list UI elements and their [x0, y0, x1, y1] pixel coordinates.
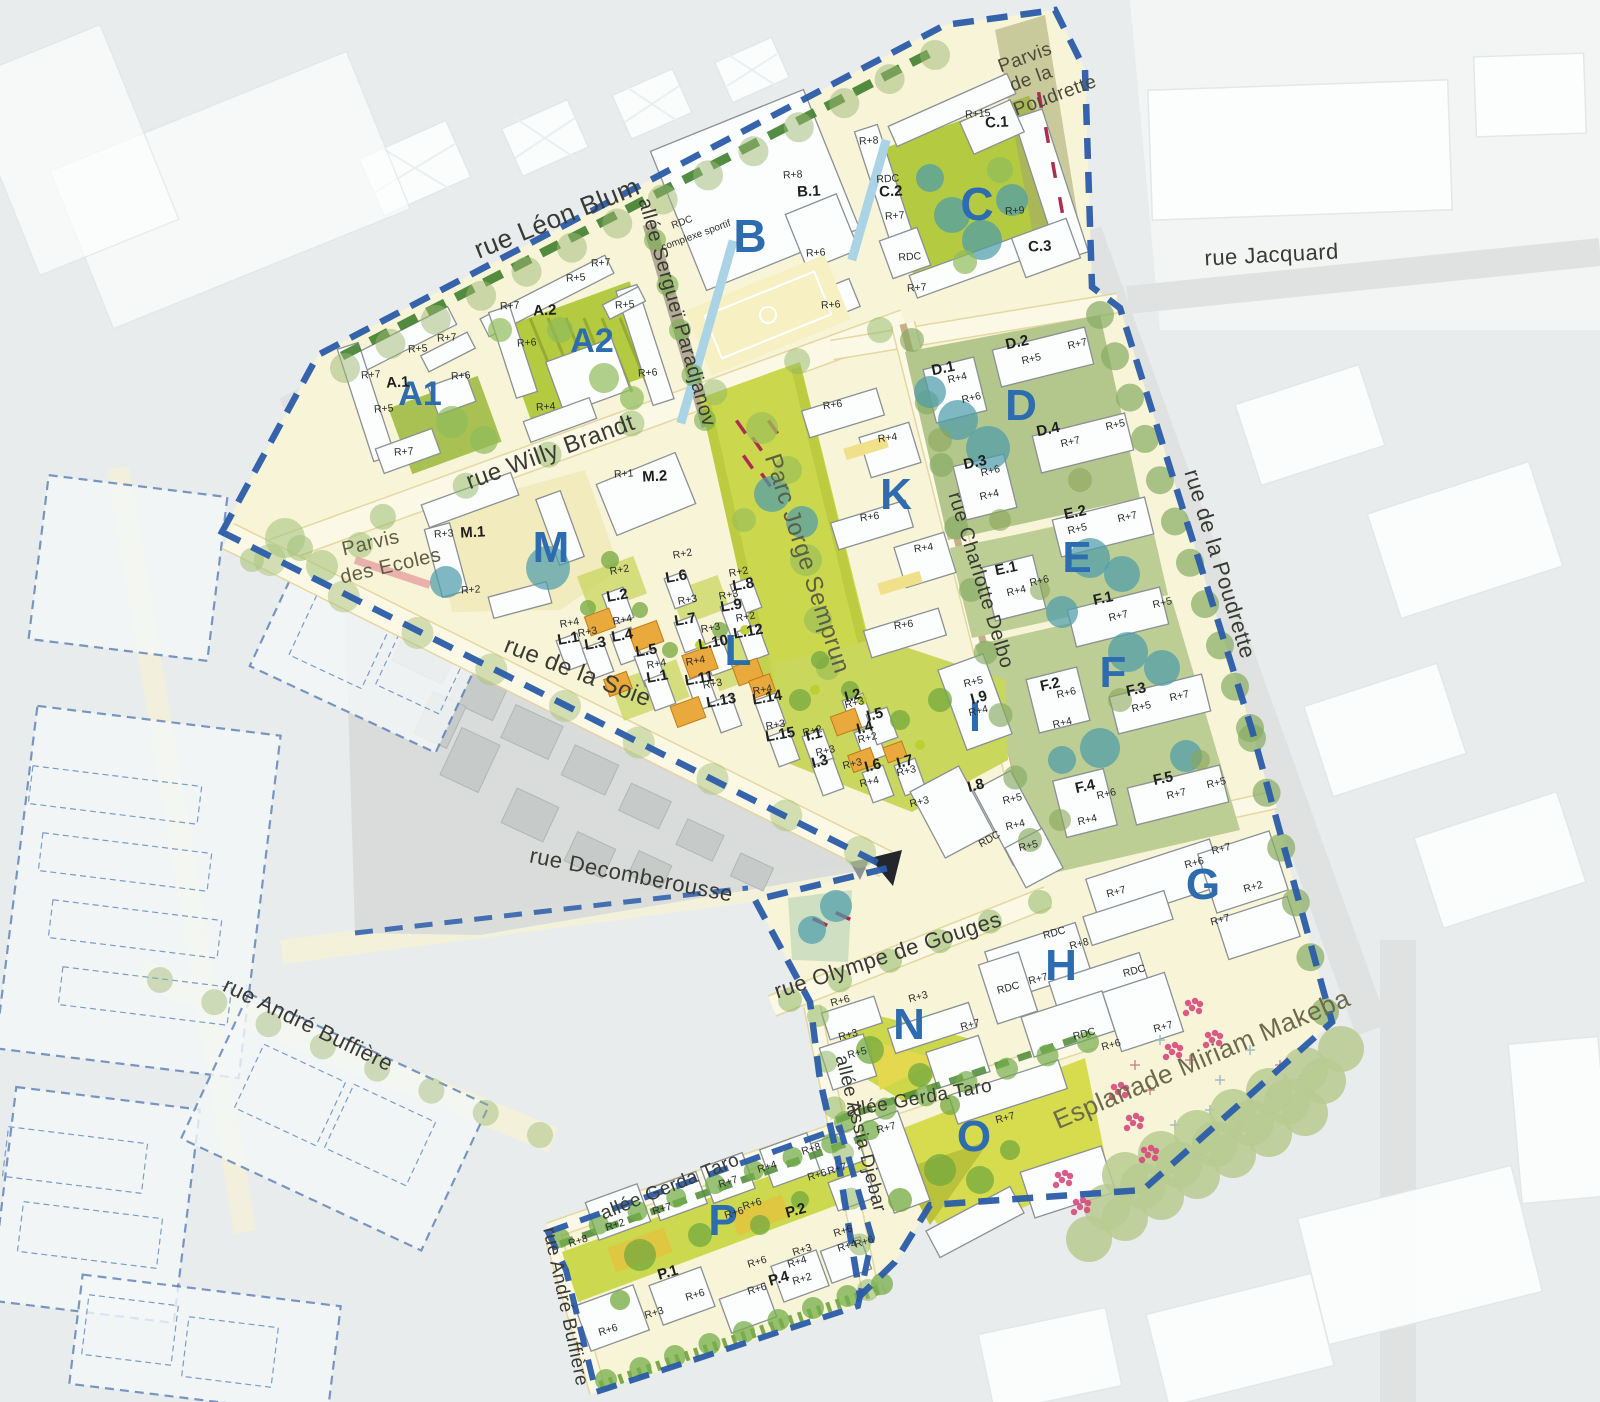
block-letter-p: P: [708, 1196, 737, 1245]
block-letter-o: O: [957, 1112, 991, 1161]
parcel-label-m-1: M.1: [460, 523, 486, 541]
height-label-r-6: R+6: [451, 369, 472, 382]
height-label-rdc: RDC: [876, 172, 900, 186]
height-label-r-6: R+6: [806, 246, 827, 259]
parcel-label-b-1: B.1: [797, 182, 821, 200]
height-label-r-7: R+7: [500, 299, 521, 312]
height-label-r-7: R+7: [907, 281, 928, 294]
height-label-r-7: R+7: [361, 368, 382, 381]
height-label-r-9: R+9: [1005, 204, 1026, 217]
block-letter-c: C: [960, 178, 993, 230]
height-label-r-7: R+7: [437, 331, 458, 344]
parcel-label-a-2: A.2: [533, 301, 557, 319]
height-label-rdc: RDC: [898, 250, 922, 264]
height-label-r-5: R+5: [566, 271, 587, 284]
height-label-r-1: R+1: [614, 467, 635, 480]
height-label-r-5: R+5: [374, 402, 395, 415]
height-label-r-5: R+5: [408, 342, 429, 355]
parcel-label-m-2: M.2: [642, 467, 668, 485]
block-letter-b: B: [733, 210, 766, 262]
height-label-r-2: R+2: [461, 583, 482, 596]
height-label-r-4: R+4: [536, 400, 557, 413]
block-letter-a2: A2: [570, 322, 613, 360]
parcel-label-c-3: C.3: [1028, 237, 1052, 255]
height-label-r-15: R+15: [965, 107, 991, 121]
height-label-r-8: R+8: [783, 168, 804, 181]
height-label-r-7: R+7: [394, 445, 415, 458]
height-label-r-3: R+3: [434, 527, 455, 540]
block-letter-n: N: [893, 1000, 925, 1049]
height-label-r-5: R+5: [615, 298, 636, 311]
masterplan-map: rue Léon Blumallée Sergueï Paradjanovrue…: [0, 0, 1600, 1402]
block-letter-d: D: [1005, 381, 1037, 430]
height-label-r-7: R+7: [885, 209, 906, 222]
block-letter-f: F: [1100, 648, 1127, 697]
height-label-r-6: R+6: [821, 298, 842, 311]
height-label-r-6: R+6: [517, 336, 538, 349]
height-label-r-7: R+7: [591, 256, 612, 269]
block-letter-m: M: [533, 523, 570, 572]
block-letter-k: K: [880, 470, 912, 519]
height-label-r-6: R+6: [638, 366, 659, 379]
parcel-label-a-1: A.1: [386, 373, 410, 391]
block-letter-e: E: [1062, 533, 1091, 582]
height-label-r-8: R+8: [859, 134, 880, 147]
masterplan-canvas: rue Léon Blumallée Sergueï Paradjanovrue…: [0, 0, 1600, 1402]
